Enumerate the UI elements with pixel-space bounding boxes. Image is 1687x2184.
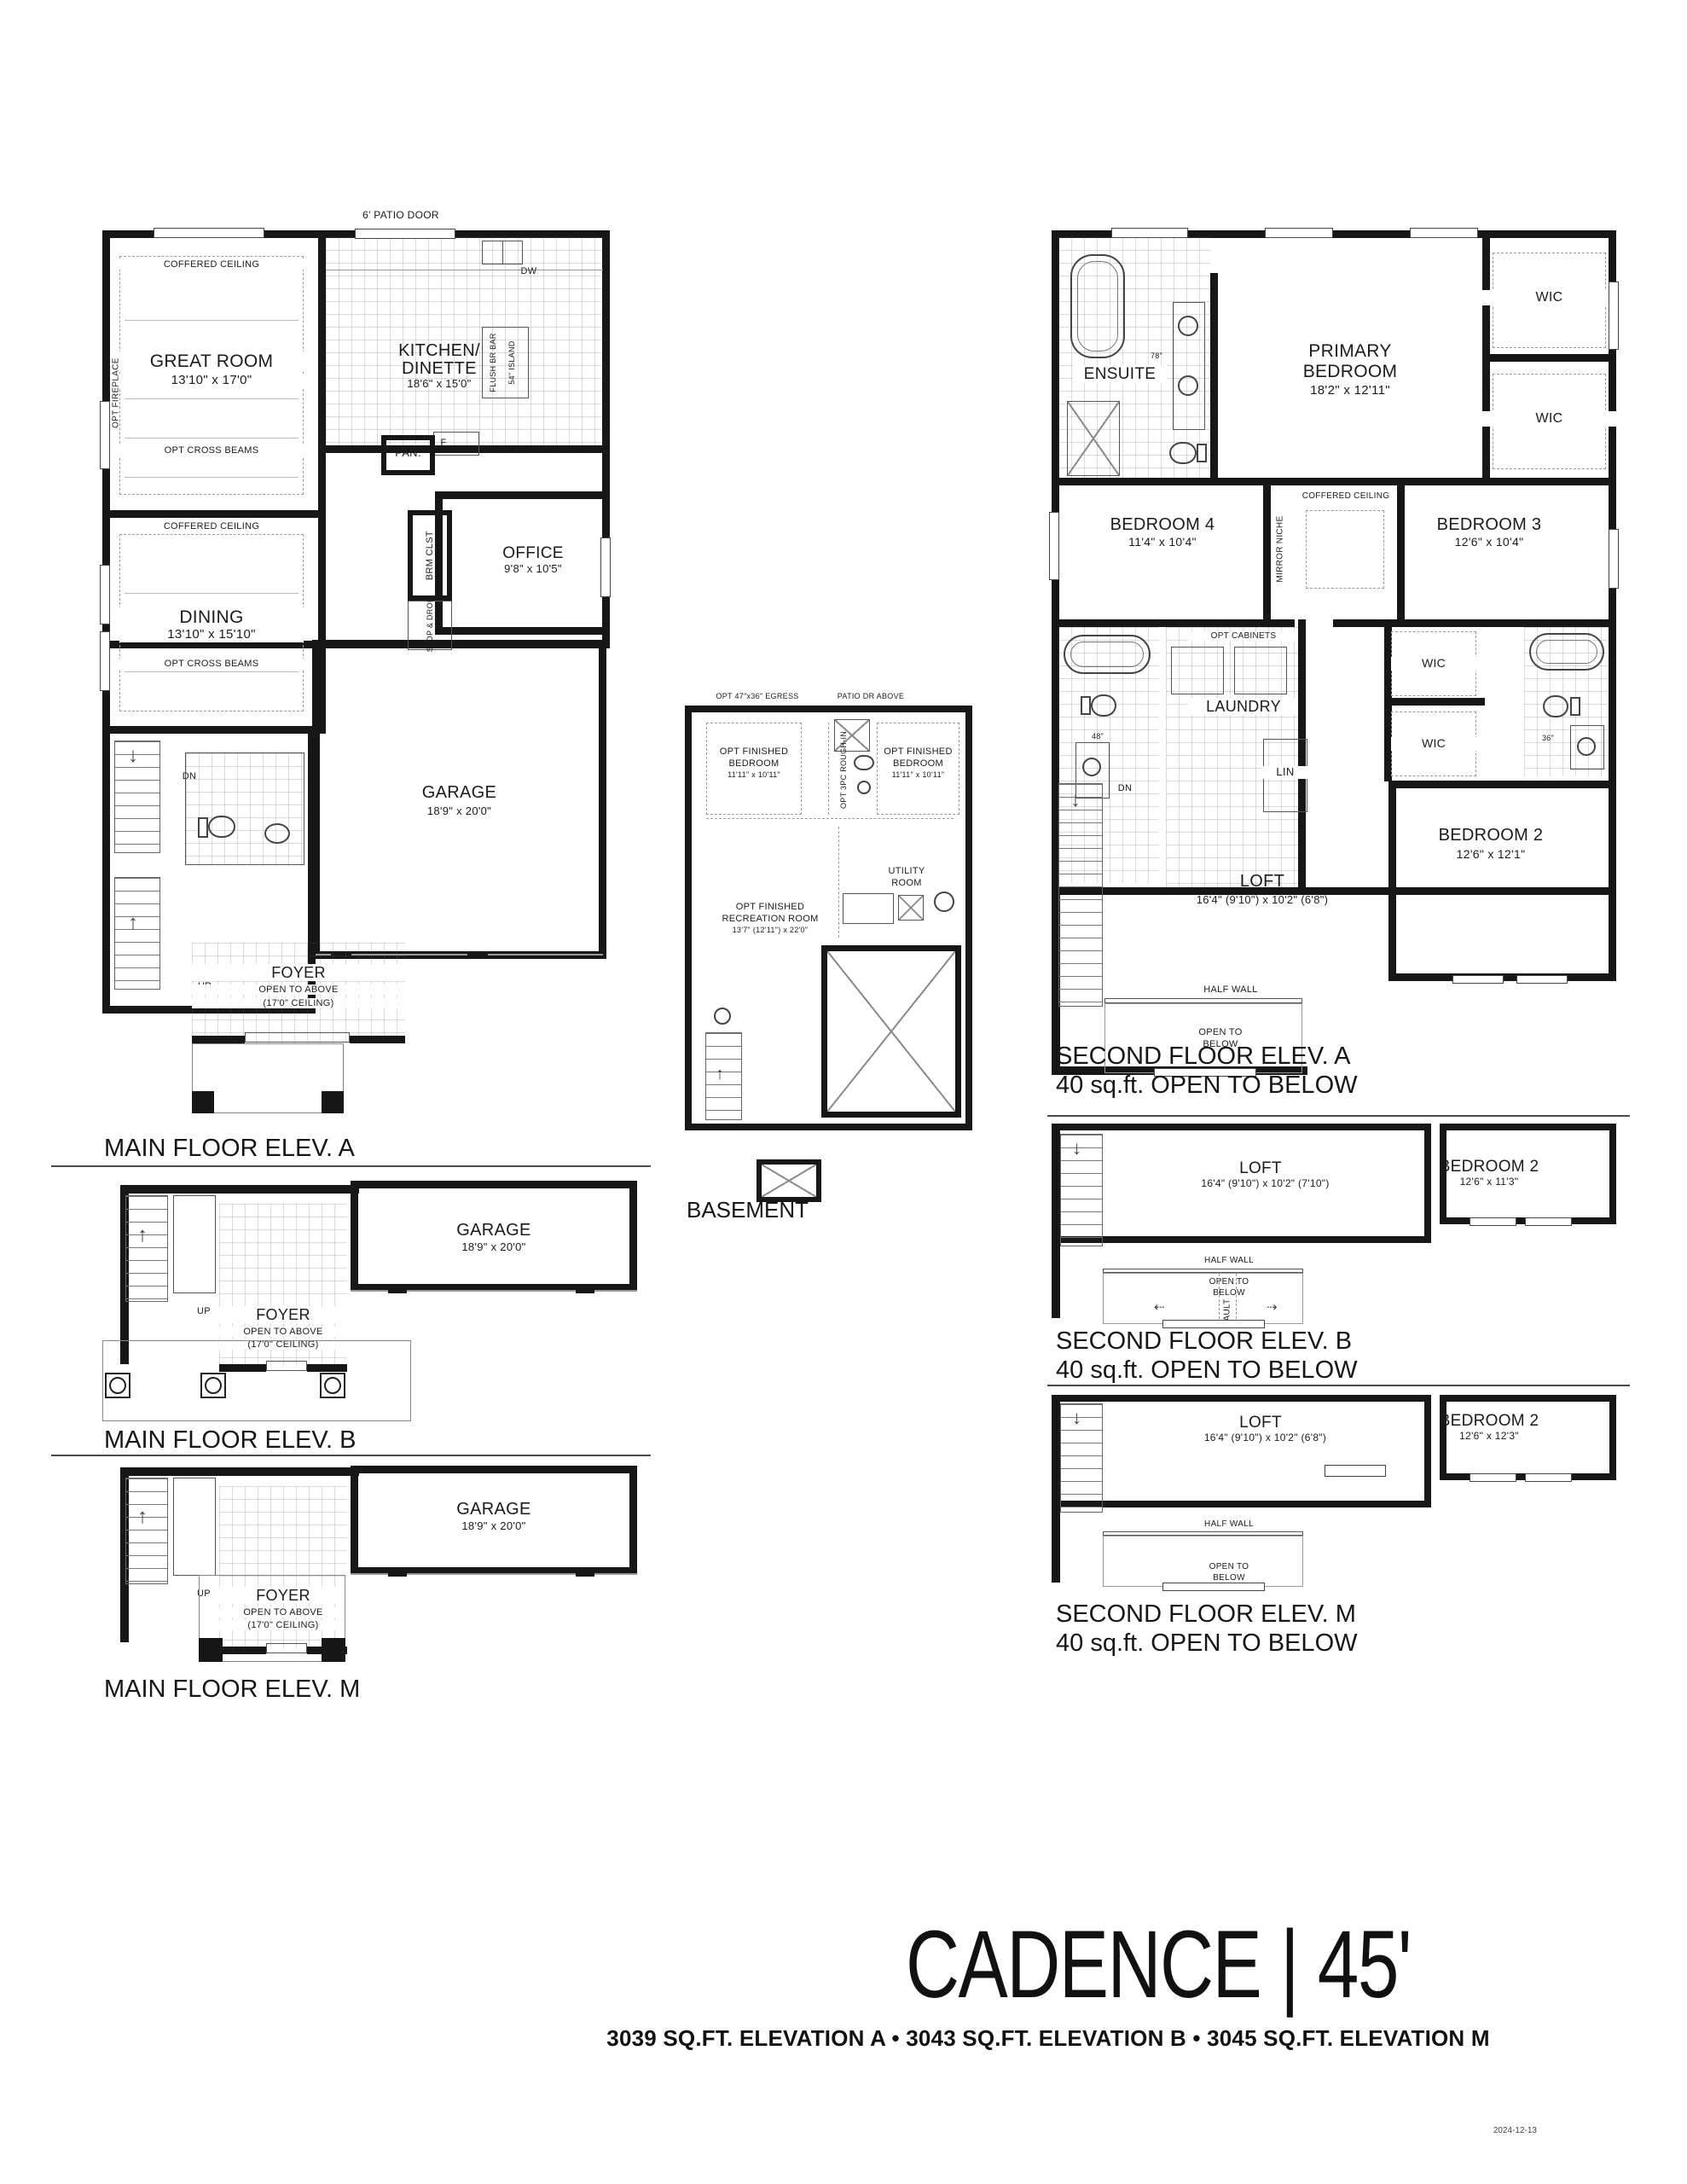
kitchen-counter-line (326, 270, 603, 270)
loft-dims: 16'4" (9'10") x 10'2" (6'8") (1195, 1432, 1336, 1443)
wall (350, 1036, 405, 1043)
patio-door-label: 6' PATIO DOOR (350, 210, 452, 221)
loft-name: LOFT (1211, 872, 1313, 891)
open-below-line2: BELOW (1186, 1573, 1272, 1583)
sink (857, 781, 871, 794)
half-wall-label: HALF WALL (1180, 985, 1282, 995)
sink (1082, 758, 1101, 776)
great-room-name: GREAT ROOM (119, 351, 304, 372)
garage-door-post (467, 951, 488, 959)
wic-label: WIC (1391, 737, 1476, 751)
opt-bedroom-dims: 11'11" x 10'11" (706, 770, 802, 779)
bedroom3-dims: 12'6" x 10'4" (1417, 536, 1562, 549)
plan-second-floor-a: 78" ENSUITE PRIMARY BEDROOM 18'2" x 12'1… (1052, 230, 1616, 1075)
wall-outline-loft (1052, 1395, 1431, 1507)
garage-door-post (388, 1287, 407, 1293)
window (1111, 228, 1188, 238)
window (100, 631, 110, 691)
mirror-niche-label: MIRROR NICHE (1275, 507, 1284, 592)
caption-second-b-line1: SECOND FLOOR ELEV. B (1056, 1327, 1352, 1356)
dashed-partition (706, 818, 954, 819)
section-divider (51, 1165, 651, 1167)
laundry-machine (1171, 647, 1224, 694)
wall (435, 627, 603, 635)
laundry-label: LAUNDRY (1188, 698, 1299, 715)
utility-room-line2: ROOM (864, 878, 949, 888)
shower (1067, 401, 1120, 476)
porch-post (322, 1091, 344, 1113)
garage-door-post (576, 1570, 594, 1577)
plan-second-floor-b: ↓ LOFT 16'4" (9'10") x 10'2" (7'10") BED… (1052, 1124, 1616, 1333)
hot-water-tank (934, 892, 954, 912)
section-divider (1047, 1385, 1630, 1386)
sink (1178, 375, 1198, 396)
rough-in-label: OPT 3PC ROUGH-IN (839, 732, 848, 809)
up-arrow-icon: ↑ (137, 1225, 148, 1246)
island-label: 54" ISLAND (507, 326, 516, 399)
toilet (208, 816, 235, 838)
plan-subtitle: 3039 SQ.FT. ELEVATION A • 3043 SQ.FT. EL… (566, 2025, 1530, 2052)
vanity-48-label: 48" (1081, 732, 1115, 741)
stairs-up (125, 1478, 168, 1584)
bathtub (1064, 635, 1151, 674)
rec-room-line2: RECREATION ROOM (719, 914, 821, 924)
wall (1210, 273, 1218, 478)
powder-room (185, 752, 304, 865)
wall-outline-bedroom2 (1388, 781, 1616, 981)
stairs-up (125, 1195, 168, 1302)
ensuite-label: ENSUITE (1073, 365, 1167, 383)
window (1265, 228, 1333, 238)
linen-label: LIN (1261, 766, 1309, 779)
wall (318, 237, 326, 512)
porch-post (192, 1091, 214, 1113)
garage-door-post (576, 1287, 594, 1293)
coffered-label: COFFERED CEILING (119, 259, 304, 270)
closet (173, 1478, 216, 1576)
open-below-line1: OPEN TO (1169, 1027, 1272, 1037)
garage-dims: 18'9" x 20'0" (316, 805, 603, 818)
furnace-equipment (843, 893, 894, 924)
foyer-open-label: OPEN TO ABOVE (219, 1327, 347, 1337)
caption-basement: BASEMENT (687, 1197, 809, 1223)
section-divider (51, 1455, 651, 1456)
toilet-tank (198, 817, 208, 838)
caption-second-a-line1: SECOND FLOOR ELEV. A (1056, 1043, 1350, 1071)
foyer-name: FOYER (219, 1306, 347, 1323)
window (1452, 975, 1504, 984)
plan-main-floor-b: GARAGE 18'9" x 20'0" ↑ UP FOYER OPEN TO … (98, 1178, 652, 1426)
vault-line (1219, 1274, 1220, 1323)
cold-cellar (757, 1159, 821, 1202)
porch-column (105, 1373, 130, 1398)
caption-second-m-line2: 40 sq.ft. OPEN TO BELOW (1056, 1629, 1358, 1658)
patio-above-label: PATIO DR ABOVE (820, 692, 922, 700)
closet (173, 1195, 216, 1293)
half-wall-label: HALF WALL (1178, 1256, 1280, 1265)
down-arrow-icon: ↓ (1072, 1139, 1081, 1158)
down-arrow-icon: ↓ (128, 746, 138, 766)
window (1470, 1217, 1516, 1226)
porch (102, 1340, 411, 1421)
loft-dims: 16'4" (9'10") x 10'2" (7'10") (1195, 1178, 1336, 1189)
bedroom2-dims: 12'6" x 12'3" (1417, 1431, 1562, 1442)
cross-beams-label: OPT CROSS BEAMS (119, 445, 304, 456)
primary-name1: PRIMARY (1222, 341, 1478, 362)
opt-bedroom-dims: 11'11" x 10'11" (877, 770, 959, 779)
up-arrow-icon: ↑ (716, 1066, 724, 1083)
kitchen-name1: KITCHEN/ (384, 341, 495, 360)
great-room-dims: 13'10" x 17'0" (119, 374, 304, 388)
caption-second-m-line1: SECOND FLOOR ELEV. M (1056, 1600, 1356, 1629)
wall (192, 1036, 245, 1043)
vault-line (1236, 1274, 1237, 1323)
office-name: OFFICE (456, 544, 610, 562)
half-wall-label: HALF WALL (1178, 1519, 1280, 1529)
egress-label: OPT 47"x36" EGRESS (710, 692, 804, 700)
plan-basement: OPT 47"x36" EGRESS PATIO DR ABOVE OPT FI… (685, 699, 972, 1192)
window (154, 228, 264, 238)
dishwasher-label: DW (512, 266, 546, 276)
toilet (1091, 694, 1116, 717)
opt-bedroom-line1: OPT FINISHED (706, 746, 802, 757)
wall (1052, 1395, 1060, 1583)
wic-label: WIC (1391, 657, 1476, 671)
front-door (245, 1032, 350, 1043)
toilet-tank (1197, 444, 1207, 462)
toilet (1169, 442, 1197, 464)
garage-name: GARAGE (351, 1500, 637, 1519)
sink (1577, 737, 1596, 756)
garage-name: GARAGE (316, 783, 603, 802)
garage-name: GARAGE (351, 1221, 637, 1240)
wall (1482, 354, 1616, 362)
caption-second-a-line2: 40 sq.ft. OPEN TO BELOW (1056, 1072, 1358, 1100)
wall (1384, 698, 1485, 706)
bedroom4-name: BEDROOM 4 (1090, 515, 1235, 534)
vanity-78-label: 78" (1144, 351, 1169, 360)
bedroom2-name: BEDROOM 2 (1418, 826, 1563, 845)
window (1516, 975, 1568, 984)
wall (1052, 1124, 1060, 1318)
caption-main-m: MAIN FLOOR ELEV. M (104, 1676, 360, 1704)
foyer-ceiling-label: (17'0" CEILING) (192, 998, 405, 1008)
window (100, 565, 110, 624)
up-arrow-icon: ↑ (128, 913, 138, 933)
kitchen-sink (482, 241, 523, 264)
plan-second-floor-m: ↓ LOFT 16'4" (9'10") x 10'2" (6'8") BEDR… (1052, 1395, 1616, 1600)
window (600, 537, 611, 597)
stairs-down (1058, 783, 1103, 1007)
foyer-open-label: OPEN TO ABOVE (192, 985, 405, 995)
kitchen-dims: 18'6" x 15'0" (384, 378, 495, 391)
bedroom2-dims: 12'6" x 12'1" (1418, 848, 1563, 862)
cross-beams-label: OPT CROSS BEAMS (119, 659, 304, 669)
coffered-label: COFFERED CEILING (119, 521, 304, 531)
bedroom2-name: BEDROOM 2 (1417, 1412, 1562, 1430)
hvac-equipment (898, 895, 924, 921)
down-arrow-icon: ↓ (1070, 790, 1081, 810)
fridge-label: F (435, 438, 452, 448)
section-divider (1047, 1115, 1630, 1117)
opt-bedroom-line2: BEDROOM (706, 758, 802, 769)
open-below-line1: OPEN TO (1186, 1562, 1272, 1571)
caption-second-b-line2: 40 sq.ft. OPEN TO BELOW (1056, 1356, 1358, 1385)
vault-left-arrow-icon: ⇠ (1154, 1301, 1165, 1314)
dining-dims: 13'10" x 15'10" (119, 628, 304, 642)
window (100, 401, 110, 469)
window (1325, 1465, 1386, 1477)
kitchen-name2: DINETTE (384, 359, 495, 378)
bathtub (1070, 254, 1125, 358)
down-arrow-icon: ↓ (1072, 1409, 1081, 1427)
bathtub (1529, 633, 1604, 671)
sink (1178, 316, 1198, 336)
stop-drop-label: STOP & DROP (426, 588, 434, 661)
date-stamp: 2024-12-13 (1460, 2126, 1537, 2135)
foyer-name: FOYER (192, 964, 405, 981)
utility-room-line1: UTILITY (864, 866, 949, 876)
wall (1263, 485, 1271, 619)
wall (120, 1185, 359, 1194)
opt-cabinets-label: OPT CABINETS (1188, 631, 1299, 641)
stair-up-label: UP (709, 1124, 739, 1133)
wall (435, 491, 603, 499)
floor-drain (714, 1008, 731, 1025)
broom-closet-label: BRM CLST (425, 517, 435, 594)
plan-title: CADENCE | 45' (906, 1909, 1504, 2019)
wall (1397, 485, 1405, 619)
window (1525, 1473, 1572, 1482)
window (1410, 228, 1478, 238)
rec-room-line1: OPT FINISHED (719, 902, 821, 912)
wic-label: WIC (1482, 411, 1616, 427)
toilet-tank (1570, 697, 1580, 716)
window (1609, 529, 1619, 589)
window (1049, 512, 1059, 580)
opt-bedroom-line1: OPT FINISHED (877, 746, 959, 757)
toilet-tank (1081, 696, 1091, 715)
bedroom2-name: BEDROOM 2 (1417, 1158, 1562, 1176)
garage-dims: 18'9" x 20'0" (351, 1520, 637, 1533)
unexcavated-area (821, 945, 961, 1118)
opt-bedroom-line2: BEDROOM (877, 758, 959, 769)
stairs-down (1060, 1403, 1103, 1513)
caption-main-b: MAIN FLOOR ELEV. B (104, 1426, 356, 1455)
wall (1333, 619, 1616, 627)
floorplan-sheet: DW FLUSH BR BAR 54" ISLAND F KITCHEN/ DI… (0, 0, 1687, 2184)
stairs-down (1060, 1134, 1103, 1246)
wic-label: WIC (1482, 290, 1616, 305)
coffered-ceiling-outline (1306, 510, 1384, 589)
up-arrow-icon: ↑ (137, 1507, 148, 1527)
porch-column (320, 1373, 345, 1398)
stair-up-label: UP (187, 1306, 221, 1316)
loft-name: LOFT (1209, 1414, 1312, 1432)
dining-name: DINING (119, 607, 304, 628)
vanity-36-label: 36" (1531, 734, 1565, 742)
opt-fireplace-label: OPT FIREPLACE (111, 351, 120, 436)
porch-column (200, 1373, 226, 1398)
caption-main-a: MAIN FLOOR ELEV. A (104, 1135, 355, 1163)
window (1470, 1473, 1516, 1482)
bedroom3-name: BEDROOM 3 (1417, 515, 1562, 534)
vault-right-arrow-icon: ⇢ (1267, 1301, 1278, 1314)
wall (120, 1467, 359, 1476)
stair-dn-label: DN (1108, 783, 1142, 793)
patio-door (355, 229, 455, 239)
dashed-partition (838, 827, 839, 938)
window (1162, 1583, 1265, 1591)
toilet (1543, 695, 1568, 717)
primary-name2: BEDROOM (1222, 362, 1478, 382)
garage-door-post (388, 1570, 407, 1577)
toilet (854, 755, 874, 770)
office-dims: 9'8" x 10'5" (456, 563, 610, 576)
rec-room-dims: 13'7" (12'11") x 22'0" (719, 926, 821, 934)
primary-dims: 18'2" x 12'11" (1222, 384, 1478, 398)
plan-main-floor-m: GARAGE 18'9" x 20'0" ↑ UP FOYER OPEN TO … (98, 1466, 652, 1698)
laundry-machine (1234, 647, 1287, 694)
porch-post (199, 1638, 223, 1662)
dashed-partition (828, 723, 829, 815)
bedroom4-dims: 11'4" x 10'4" (1090, 536, 1235, 549)
powder-sink (264, 823, 290, 844)
garage-dims: 18'9" x 20'0" (351, 1241, 637, 1254)
bedroom2-dims: 12'6" x 11'3" (1417, 1176, 1562, 1188)
pantry-label: PAN. (381, 447, 435, 460)
loft-dims: 16'4" (9'10") x 10'2" (6'8") (1186, 894, 1339, 907)
plan-main-floor-a: DW FLUSH BR BAR 54" ISLAND F KITCHEN/ DI… (102, 230, 610, 1117)
wall (1052, 478, 1616, 485)
coffered-label: COFFERED CEILING (1286, 491, 1406, 501)
window (1609, 282, 1619, 350)
loft-name: LOFT (1209, 1159, 1312, 1177)
porch-post (322, 1638, 345, 1662)
window (1525, 1217, 1572, 1226)
wall (1052, 619, 1295, 627)
